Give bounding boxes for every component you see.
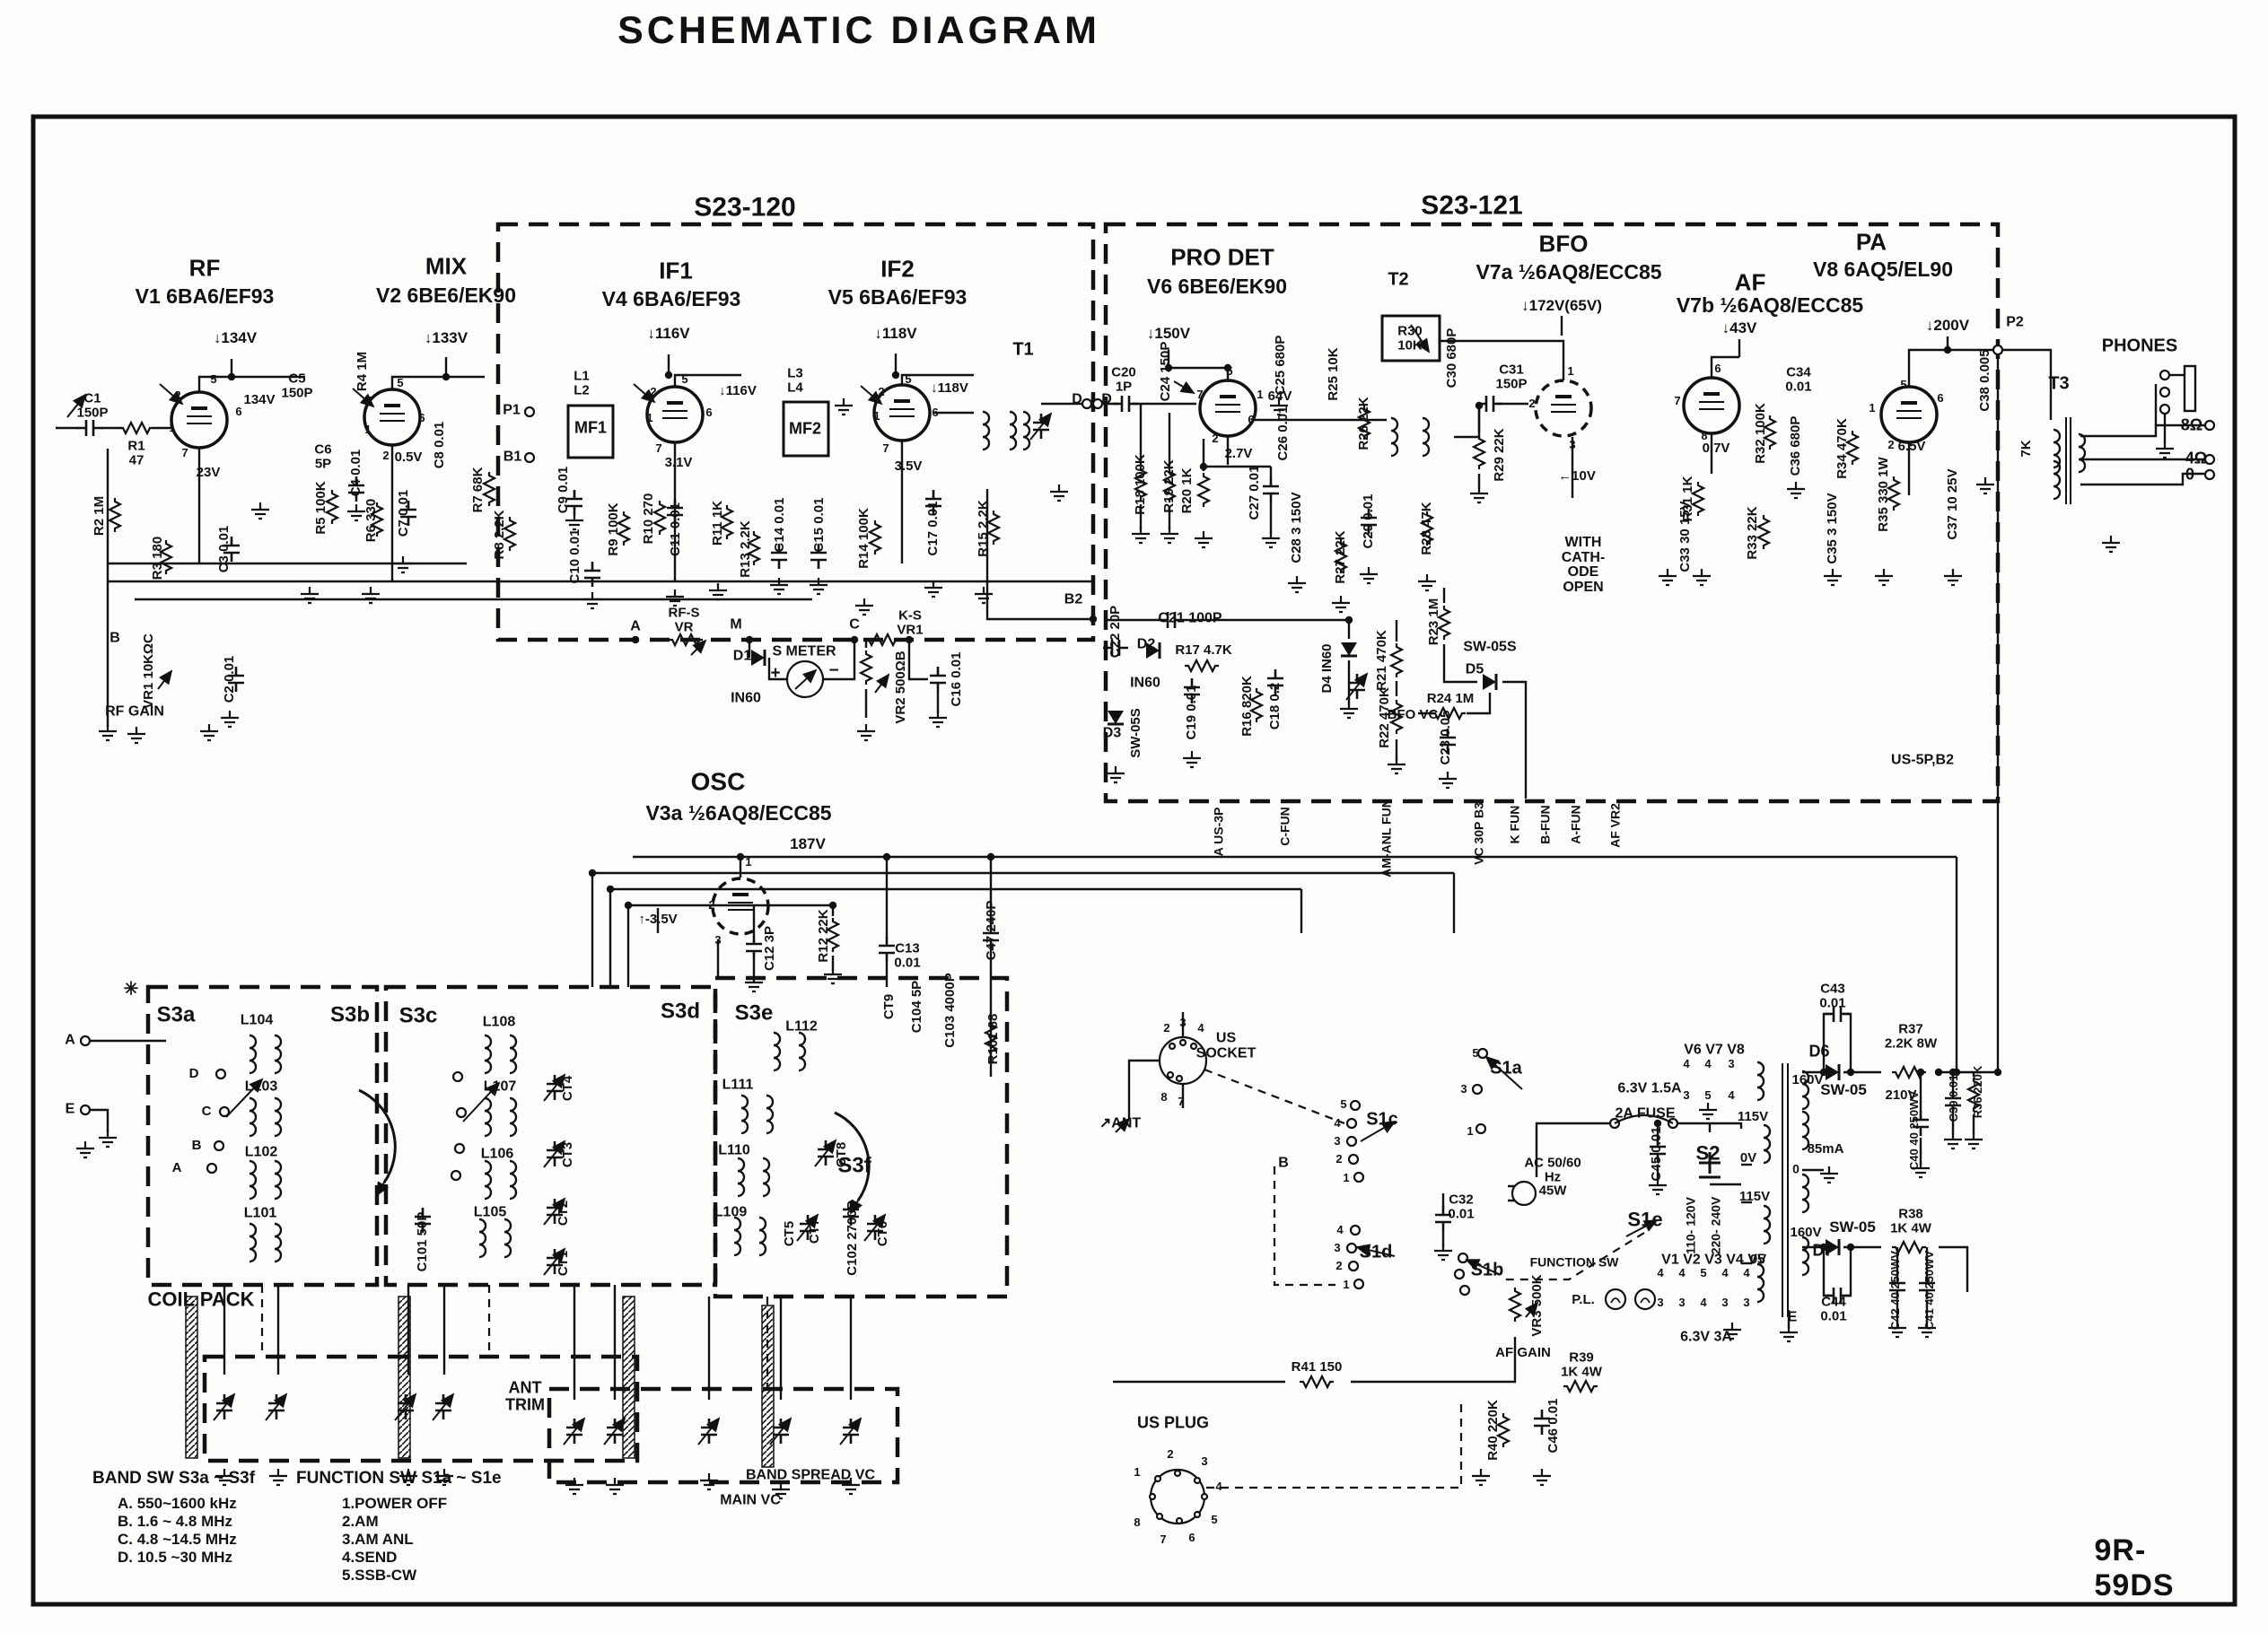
schematic-label: V4 6BA6/EF93 — [602, 289, 741, 310]
schematic-label: C8 0.01 — [433, 422, 447, 469]
schematic-label: 3 — [1657, 1297, 1663, 1309]
schematic-label: CT6 — [876, 1221, 890, 1246]
function-sw-legend-title: FUNCTION SW S1a ~ S1e — [296, 1470, 502, 1488]
schematic-label: R12 22K — [817, 909, 831, 962]
schematic-label: C32 0.01 — [1448, 1192, 1474, 1220]
schematic-label: 187V — [790, 836, 826, 852]
function-sw-legend-item: 1.POWER OFF — [342, 1496, 447, 1512]
schematic-label: 4 — [1678, 1267, 1685, 1279]
schematic-label: 2 — [1335, 1153, 1342, 1166]
schematic-label: C — [849, 618, 860, 633]
schematic-label: R9 100K — [607, 502, 621, 555]
schematic-label: C36 680P — [1789, 416, 1803, 476]
function-sw-legend-item: 2.AM — [342, 1514, 379, 1530]
schematic-label: 1 — [1567, 365, 1573, 378]
schematic-label: C21 100P — [1158, 612, 1222, 627]
schematic-label: R26 22K — [1357, 397, 1371, 450]
schematic-label: 4 — [1721, 1267, 1728, 1279]
schematic-label: R13 2.2K — [739, 520, 753, 577]
schematic-label: R35 330 1W — [1877, 457, 1891, 531]
schematic-label: D3 — [1103, 727, 1121, 742]
schematic-label: T2 — [1388, 271, 1408, 290]
schematic-label: 3 — [1678, 1297, 1685, 1309]
schematic-label: COIL PACK — [148, 1290, 255, 1311]
schematic-label: S2 — [1696, 1144, 1721, 1165]
schematic-label: R15 2.2K — [976, 500, 991, 556]
schematic-label: 7 — [181, 447, 188, 459]
schematic-label: IF2 — [880, 257, 915, 281]
schematic-label: C18 0.2 — [1268, 683, 1283, 730]
schematic-label: ↗ANT — [1099, 1117, 1141, 1132]
schematic-label: V6 6BE6/EK90 — [1147, 276, 1287, 298]
schematic-label: 3 — [1721, 1297, 1728, 1309]
schematic-label: 4 — [1334, 1117, 1340, 1130]
schematic-label: P.L. — [1572, 1293, 1595, 1307]
schematic-label: S3a — [157, 1005, 196, 1027]
schematic-label: C12 3P — [763, 926, 777, 971]
schematic-label: R14 100K — [857, 508, 871, 569]
schematic-label: C25 680P — [1274, 336, 1288, 396]
schematic-label: 1 — [745, 856, 751, 869]
schematic-label: 7K — [2019, 440, 2034, 457]
schematic-label: SW-05 — [1829, 1219, 1876, 1236]
schematic-label: IF1 — [659, 258, 693, 283]
schematic-label: 6 — [1188, 1532, 1195, 1544]
schematic-label: 2 — [1212, 432, 1218, 445]
schematic-label: 2 — [650, 386, 656, 398]
schematic-label: C10 0.01 — [568, 529, 582, 584]
schematic-label: C6 5P — [314, 442, 331, 470]
schematic-label: S1c — [1366, 1111, 1398, 1130]
schematic-label: C9 0.01 — [556, 467, 571, 514]
schematic-label: 6.3V 3A — [1680, 1331, 1732, 1346]
schematic-label: S3c — [399, 1006, 438, 1028]
schematic-label: 1 — [1343, 1279, 1349, 1291]
schematic-label: PA — [1856, 230, 1887, 254]
schematic-label: AF — [1735, 270, 1766, 294]
schematic-label: C104 5P — [910, 981, 924, 1033]
schematic-label: V7b ½6AQ8/ECC85 — [1677, 295, 1863, 317]
schematic-label: P2 — [2006, 316, 2024, 331]
schematic-label: 110- 120V — [1685, 1197, 1698, 1254]
schematic-label: L1 L2 — [574, 369, 590, 397]
schematic-label: C-FUN — [1279, 807, 1292, 846]
schematic-label: R5 100K — [314, 481, 328, 534]
schematic-label: 5 — [1211, 1514, 1217, 1526]
schematic-label: 7 — [1178, 1096, 1184, 1108]
schematic-label: 2A FUSE — [1616, 1107, 1676, 1122]
schematic-label: SW-05S — [1129, 708, 1143, 758]
schematic-label: C20 1P — [1111, 365, 1136, 393]
schematic-label: 4 — [1657, 1267, 1663, 1279]
schematic-label: 3 — [1743, 1297, 1749, 1309]
schematic-label: 160V — [1791, 1073, 1823, 1087]
schematic-label: CT1 — [556, 1251, 571, 1276]
schematic-label: BFO VC — [1388, 708, 1439, 722]
schematic-label: V1 6BA6/EF93 — [136, 286, 275, 308]
schematic-label: R29 22K — [1493, 428, 1507, 481]
schematic-label: IN60 — [731, 692, 761, 707]
schematic-label: OSC — [691, 768, 746, 794]
schematic-label: C39 0.01 — [1948, 1075, 1960, 1122]
schematic-label: S23-120 — [694, 193, 795, 221]
wiring-diagram — [0, 0, 2268, 1633]
schematic-label: 6 — [418, 412, 425, 424]
schematic-label: 6 — [235, 406, 241, 418]
schematic-label: R36 220K — [1972, 1066, 1984, 1119]
schematic-label: 1 — [873, 410, 880, 423]
schematic-label: PRO DET — [1170, 245, 1274, 269]
schematic-label: 3 — [1460, 1083, 1467, 1096]
schematic-label: CT8 — [835, 1142, 849, 1167]
schematic-label: V2 6BE6/EK90 — [376, 285, 516, 307]
schematic-label: R16 820K — [1240, 676, 1255, 737]
schematic-label: 4 — [1743, 1267, 1749, 1279]
schematic-label: 5 — [1704, 1089, 1711, 1102]
schematic-label: R33 22K — [1746, 506, 1760, 559]
schematic-label: S3d — [661, 1001, 700, 1024]
schematic-label: V3a ½6AQ8/ECC85 — [645, 803, 831, 825]
schematic-label: 160V — [1790, 1226, 1821, 1240]
schematic-label: S23-121 — [1421, 191, 1522, 219]
schematic-label: ←10V — [1558, 469, 1596, 484]
schematic-label: WITH CATH- ODE OPEN — [1562, 536, 1606, 596]
schematic-label: V6 V7 V8 — [1684, 1044, 1745, 1059]
schematic-label: 6.5V — [1898, 440, 1926, 454]
schematic-label: R8 2.2K — [493, 510, 507, 559]
schematic-label: IN60 — [1130, 677, 1160, 692]
schematic-label: L110 — [718, 1144, 750, 1159]
schematic-label: B1 — [504, 450, 521, 466]
schematic-label: CT9 — [882, 994, 897, 1019]
schematic-label: 6 — [705, 406, 712, 419]
schematic-label: 4 — [1197, 1022, 1204, 1035]
schematic-label: L111 — [722, 1078, 754, 1094]
schematic-label: C1 150P — [76, 391, 108, 419]
schematic-label: D7 — [1812, 1243, 1833, 1260]
schematic-label: R4 1M — [355, 352, 370, 391]
schematic-label: 7 — [1674, 395, 1680, 407]
schematic-label: R23 1M — [1427, 598, 1441, 646]
schematic-label: S3b — [330, 1005, 370, 1027]
schematic-label: AF VR2 — [1609, 803, 1623, 848]
schematic-label: BAND SPREAD VC — [746, 1469, 875, 1484]
schematic-label: B2 — [1064, 593, 1082, 608]
schematic-label: ↓133V — [425, 330, 468, 346]
schematic-label: 4 — [1683, 1058, 1689, 1070]
schematic-label: D4 IN60 — [1320, 643, 1335, 693]
schematic-label: L105 — [474, 1206, 506, 1221]
schematic-label: PHONES — [2102, 337, 2177, 356]
schematic-label: AF GAIN — [1495, 1346, 1551, 1360]
schematic-label: RF-S VR — [669, 606, 700, 633]
schematic-label: S1a — [1490, 1060, 1522, 1078]
schematic-label: T1 — [1012, 341, 1033, 360]
schematic-label: 8 — [1701, 430, 1707, 442]
schematic-label: ↓150V — [1147, 326, 1190, 342]
schematic-label: C45 0.01 — [1650, 1127, 1664, 1182]
schematic-label: CT5 — [783, 1221, 797, 1246]
schematic-label: 1 — [169, 422, 175, 434]
band-sw-legend-item: B. 1.6 ~ 4.8 MHz — [118, 1514, 232, 1530]
schematic-label: A — [172, 1161, 182, 1175]
schematic-label: 0V — [1740, 1151, 1756, 1166]
schematic-label: 6 — [1714, 362, 1721, 375]
schematic-label: 4 — [1704, 1058, 1711, 1070]
schematic-label: R21 470K — [1375, 630, 1389, 691]
schematic-label: 2 — [708, 899, 714, 912]
schematic-label: R1 47 — [127, 439, 144, 467]
schematic-label: D1 — [733, 650, 751, 665]
schematic-label: M — [730, 618, 741, 633]
schematic-label: 1 — [364, 424, 371, 436]
schematic-label: S1d — [1360, 1244, 1393, 1262]
schematic-label: C4 0.01 — [349, 450, 363, 497]
schematic-label: E — [66, 1103, 75, 1118]
schematic-label: 1 — [1343, 1172, 1349, 1184]
schematic-label: ↓172V(65V) — [1521, 298, 1602, 314]
schematic-label: RF — [189, 256, 221, 280]
schematic-label: 7 — [655, 442, 661, 455]
schematic-label: ↓134V — [214, 330, 257, 346]
schematic-label: D — [189, 1067, 199, 1081]
schematic-label: B — [109, 632, 120, 647]
schematic-label: E — [1788, 1311, 1798, 1326]
schematic-label: CT3 — [561, 1142, 575, 1167]
schematic-label: R39 1K 4W — [1561, 1350, 1602, 1378]
schematic-label: 3 — [1569, 439, 1575, 451]
schematic-label: ↓116V — [647, 326, 689, 342]
schematic-label: C44 0.01 — [1820, 1295, 1846, 1323]
schematic-label: C5 150P — [281, 371, 312, 399]
schematic-label: R37 2.2K 8W — [1885, 1022, 1937, 1050]
schematic-label: 115V — [1738, 1110, 1768, 1124]
schematic-label: ✳ — [124, 981, 139, 1000]
schematic-label: MIX — [425, 254, 467, 278]
schematic-label: 7 — [366, 395, 372, 407]
function-sw-legend-item: 3.AM ANL — [342, 1532, 414, 1548]
schematic-label: C37 10 25V — [1946, 468, 1960, 539]
schematic-label: 5 — [681, 373, 687, 386]
schematic-label: A US-3P — [1213, 808, 1226, 857]
schematic-label: 8 — [1160, 1091, 1167, 1104]
schematic-label: 7 — [1196, 389, 1203, 401]
schematic-label: 2 — [878, 386, 884, 398]
schematic-label: 3 — [714, 934, 721, 947]
schematic-label: 0.7V — [1703, 441, 1730, 456]
schematic-label: B-FUN — [1539, 805, 1553, 844]
schematic-label: 2 — [1163, 1022, 1169, 1035]
schematic-label: A — [65, 1034, 75, 1049]
schematic-label: ↓43V — [1722, 320, 1757, 336]
schematic-label: C7 0.01 — [397, 490, 411, 537]
schematic-label: 8 — [1134, 1516, 1140, 1529]
schematic-label: ↓118V — [874, 326, 916, 342]
schematic-label: 3 — [1334, 1242, 1340, 1254]
schematic-label: US SOCKET — [1196, 1031, 1257, 1061]
schematic-label: 7 — [1160, 1533, 1166, 1546]
schematic-label: L108 — [483, 1016, 515, 1031]
schematic-label: R25 10K — [1327, 347, 1341, 400]
schematic-label: US-5P,B2 — [1891, 754, 1954, 769]
schematic-label: R2 1M — [92, 496, 107, 536]
schematic-label: D2 — [1137, 638, 1155, 653]
schematic-label: R41 150 — [1292, 1360, 1343, 1375]
schematic-label: R11 1K — [711, 501, 725, 546]
schematic-label: L106 — [481, 1148, 513, 1163]
schematic-label: R32 100K — [1754, 403, 1768, 464]
schematic-label: R40 220K — [1486, 1400, 1501, 1461]
schematic-label: S METER — [772, 645, 836, 660]
schematic-label: 5 — [1472, 1047, 1478, 1060]
schematic-label: 5 — [210, 373, 216, 386]
schematic-label: D — [1101, 393, 1112, 408]
schematic-label: 0 — [2185, 467, 2194, 484]
schematic-label: 5 — [1900, 379, 1906, 391]
schematic-label: 7 — [882, 442, 889, 455]
schematic-label: 4 — [1728, 1089, 1734, 1102]
schematic-label: 5 — [905, 373, 911, 386]
schematic-label: CT2 — [556, 1201, 571, 1226]
schematic-label: 5 — [1226, 365, 1232, 378]
schematic-label: 2 — [1335, 1260, 1342, 1272]
schematic-label: 8Ω — [2181, 417, 2202, 434]
schematic-label: R19 22K — [1162, 459, 1177, 512]
schematic-label: − — [828, 662, 838, 680]
schematic-label: C42 40 250WV — [1889, 1251, 1902, 1330]
schematic-label: L103 — [245, 1080, 277, 1096]
schematic-label: 3 — [1683, 1089, 1689, 1102]
schematic-label: C19 0.01 — [1185, 686, 1199, 740]
schematic-label: 1 — [1869, 402, 1875, 415]
schematic-label: L112 — [785, 1020, 818, 1035]
schematic-label: C — [202, 1105, 212, 1119]
schematic-label: C35 3 150V — [1826, 493, 1840, 563]
schematic-label: 23V — [197, 466, 221, 480]
schematic-label: C41 40 250WV — [1923, 1251, 1936, 1330]
schematic-label: A — [630, 620, 641, 635]
schematic-label: 2 — [1167, 1448, 1173, 1461]
schematic-label: 3 — [1201, 1455, 1207, 1468]
schematic-label: CT4 — [561, 1076, 575, 1101]
schematic-label: 85mA — [1808, 1142, 1844, 1157]
schematic-label: C28 3 150V — [1290, 492, 1304, 563]
schematic-label: 115V — [1739, 1190, 1770, 1204]
schematic-label: MF2 — [789, 421, 821, 438]
schematic-label: C102 2700P — [845, 1201, 860, 1275]
schematic-label: 0.5V — [395, 450, 423, 465]
schematic-label: 2.7V — [1225, 447, 1253, 461]
schematic-label: C13 0.01 — [894, 941, 920, 969]
schematic-label: R20 1K — [1180, 468, 1195, 514]
schematic-label: BFO — [1539, 231, 1589, 256]
band-sw-legend-item: C. 4.8 ~14.5 MHz — [118, 1532, 237, 1548]
schematic-label: R3 180 — [151, 537, 165, 580]
schematic-label: 4 — [1215, 1480, 1222, 1493]
schematic-label: AC 50/60 Hz 45W — [1524, 1157, 1581, 1199]
schematic-label: C14 0.01 — [773, 498, 787, 553]
schematic-label: L101 — [244, 1207, 276, 1222]
schematic-label: ↓116V — [719, 384, 757, 398]
schematic-label: 3 — [1179, 1017, 1186, 1029]
schematic-label: 4Ω — [2185, 450, 2207, 467]
schematic-label: 3 — [1728, 1058, 1734, 1070]
schematic-label: ↑-3.5V — [638, 913, 677, 927]
schematic-label: V8 6AQ5/EL90 — [1813, 259, 1953, 281]
schematic-label: 4 — [1336, 1224, 1343, 1236]
schematic-label: RF GAIN — [105, 705, 164, 720]
schematic-label: 6 — [1248, 414, 1254, 426]
band-sw-legend-item: D. 10.5 ~30 MHz — [118, 1550, 232, 1566]
schematic-label: MF1 — [574, 420, 607, 437]
schematic-label: 0 — [1792, 1163, 1800, 1176]
schematic-label: C38 0.005 — [1978, 349, 1992, 411]
schematic-label: C40 40 250WV — [1908, 1091, 1921, 1170]
schematic-label: 2 — [1887, 439, 1894, 451]
schematic-label: 5 — [1340, 1098, 1346, 1111]
schematic-label: C103 4000P — [943, 973, 958, 1047]
schematic-label: V5 6BA6/EF93 — [828, 287, 968, 309]
schematic-label: C3 0.01 — [217, 526, 232, 573]
schematic-label: R7 68K — [471, 467, 486, 513]
schematic-label: D6 — [1808, 1044, 1829, 1061]
schematic-label: R6 330 — [364, 499, 379, 542]
function-sw-legend-item: 5.SSB-CW — [342, 1568, 416, 1584]
schematic-label: K FUN — [1509, 806, 1522, 844]
schematic-label: VR3 500K — [1530, 1274, 1545, 1336]
schematic-label: VR1 10KΩC — [142, 633, 156, 709]
schematic-label: P1 — [503, 404, 521, 419]
schematic-label: FUNCTION SW — [1530, 1256, 1619, 1270]
schematic-label: R18 100K — [1134, 454, 1148, 515]
schematic-label: R24 1M — [1427, 692, 1475, 706]
schematic-label: 3.1V — [665, 456, 693, 470]
schematic-label: C17 0.01 — [926, 502, 941, 556]
schematic-label: ANT TRIM — [505, 1379, 545, 1412]
schematic-label: US PLUG — [1137, 1415, 1209, 1432]
schematic-label: B — [192, 1139, 202, 1153]
schematic-label: 1 — [1134, 1466, 1140, 1479]
schematic-label: C29 0.01 — [1362, 494, 1376, 549]
schematic-label: SW-05 — [1820, 1082, 1867, 1098]
schematic-label: 2 — [174, 389, 180, 402]
schematic-label: C101 50P — [416, 1212, 430, 1272]
schematic-label: 3.5V — [895, 459, 923, 474]
schematic-label: R10 270 — [642, 493, 656, 545]
schematic-label: C43 0.01 — [1819, 982, 1845, 1009]
schematic-label: 3 — [1334, 1135, 1340, 1148]
schematic-label: V1 V2 V3 V4 V5 — [1661, 1253, 1765, 1269]
schematic-label: 6.3V 1.5A — [1617, 1082, 1681, 1097]
schematic-label: T3 — [2048, 375, 2069, 394]
schematic-label: L102 — [245, 1146, 277, 1161]
schematic-label: R17 4.7K — [1175, 643, 1231, 658]
schematic-label: 2 — [1528, 397, 1535, 410]
schematic-label: C24 150P — [1159, 342, 1173, 402]
schematic-label: + — [770, 665, 780, 683]
schematic-label: ↓118V — [931, 381, 968, 396]
schematic-label: C30 680P — [1445, 328, 1459, 389]
schematic-label: ↓200V — [1926, 318, 1969, 334]
schematic-label: L107 — [484, 1080, 516, 1096]
schematic-label: C27 0.01 — [1248, 466, 1262, 520]
function-sw-legend-item: 4.SEND — [342, 1550, 397, 1566]
schematic-label: D — [1072, 393, 1082, 408]
schematic-label: C11 0.01 — [669, 502, 683, 556]
schematic-label: SW-05S — [1463, 641, 1516, 656]
band-sw-legend-item: A. 550~1600 kHz — [118, 1496, 237, 1512]
schematic-label: 6 — [932, 406, 938, 419]
